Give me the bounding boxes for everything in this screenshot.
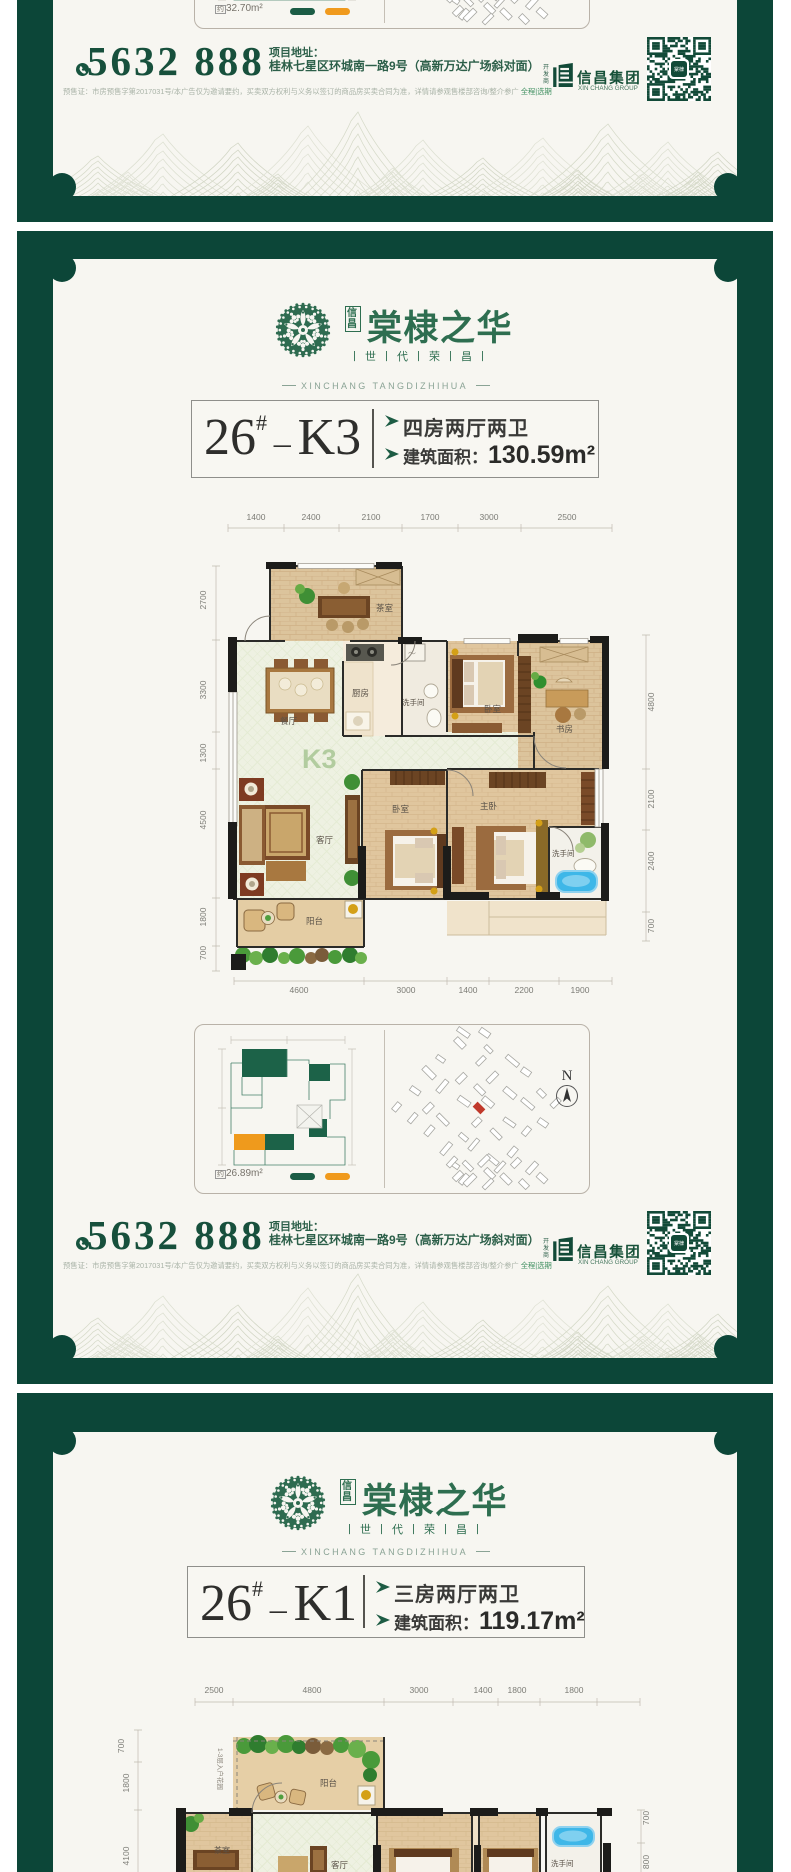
svg-text:2400: 2400 — [302, 512, 321, 522]
svg-text:3000: 3000 — [480, 512, 499, 522]
svg-text:4800: 4800 — [646, 692, 656, 711]
svg-text:3000: 3000 — [410, 1685, 429, 1695]
svg-text:2100: 2100 — [646, 789, 656, 808]
svg-text:4600: 4600 — [290, 985, 309, 995]
svg-text:1800: 1800 — [198, 907, 208, 926]
svg-text:2700: 2700 — [198, 590, 208, 609]
svg-text:4100: 4100 — [121, 1846, 131, 1865]
svg-text:阳台: 阳台 — [306, 916, 323, 926]
svg-text:4800: 4800 — [303, 1685, 322, 1695]
svg-text:茶室: 茶室 — [214, 1845, 230, 1855]
svg-text:3000: 3000 — [397, 985, 416, 995]
svg-text:1800: 1800 — [508, 1685, 527, 1695]
svg-text:餐厅: 餐厅 — [280, 716, 298, 726]
svg-text:1-3层入户花园: 1-3层入户花园 — [216, 1748, 225, 1790]
svg-text:阳台: 阳台 — [320, 1778, 337, 1788]
svg-text:800: 800 — [641, 1855, 651, 1869]
svg-text:客厅: 客厅 — [316, 835, 334, 845]
svg-text:2500: 2500 — [558, 512, 577, 522]
svg-text:洗手间: 洗手间 — [551, 1858, 574, 1868]
svg-text:书房: 书房 — [556, 724, 573, 734]
svg-text:1700: 1700 — [421, 512, 440, 522]
svg-text:厨房: 厨房 — [352, 688, 369, 698]
svg-text:700: 700 — [116, 1739, 126, 1753]
svg-text:4500: 4500 — [198, 810, 208, 829]
svg-text:1400: 1400 — [459, 985, 478, 995]
svg-text:1800: 1800 — [565, 1685, 584, 1695]
svg-text:1400: 1400 — [247, 512, 266, 522]
svg-text:1900: 1900 — [571, 985, 590, 995]
svg-text:700: 700 — [198, 946, 208, 960]
svg-text:1400: 1400 — [474, 1685, 493, 1695]
svg-text:K3: K3 — [302, 744, 337, 774]
svg-text:2100: 2100 — [362, 512, 381, 522]
svg-text:2400: 2400 — [646, 851, 656, 870]
svg-text:洗手间: 洗手间 — [552, 848, 575, 858]
svg-text:3300: 3300 — [198, 680, 208, 699]
svg-text:客厅: 客厅 — [331, 1860, 349, 1870]
svg-text:700: 700 — [646, 919, 656, 933]
svg-text:洗手间: 洗手间 — [402, 697, 425, 707]
svg-text:2200: 2200 — [515, 985, 534, 995]
svg-text:主卧: 主卧 — [480, 801, 498, 811]
svg-text:茶室: 茶室 — [376, 603, 394, 613]
svg-text:2500: 2500 — [205, 1685, 224, 1695]
svg-text:1300: 1300 — [198, 743, 208, 762]
svg-text:1800: 1800 — [121, 1773, 131, 1792]
svg-text:卧室: 卧室 — [392, 804, 410, 814]
svg-text:卧室: 卧室 — [484, 704, 502, 714]
svg-text:700: 700 — [641, 1811, 651, 1825]
